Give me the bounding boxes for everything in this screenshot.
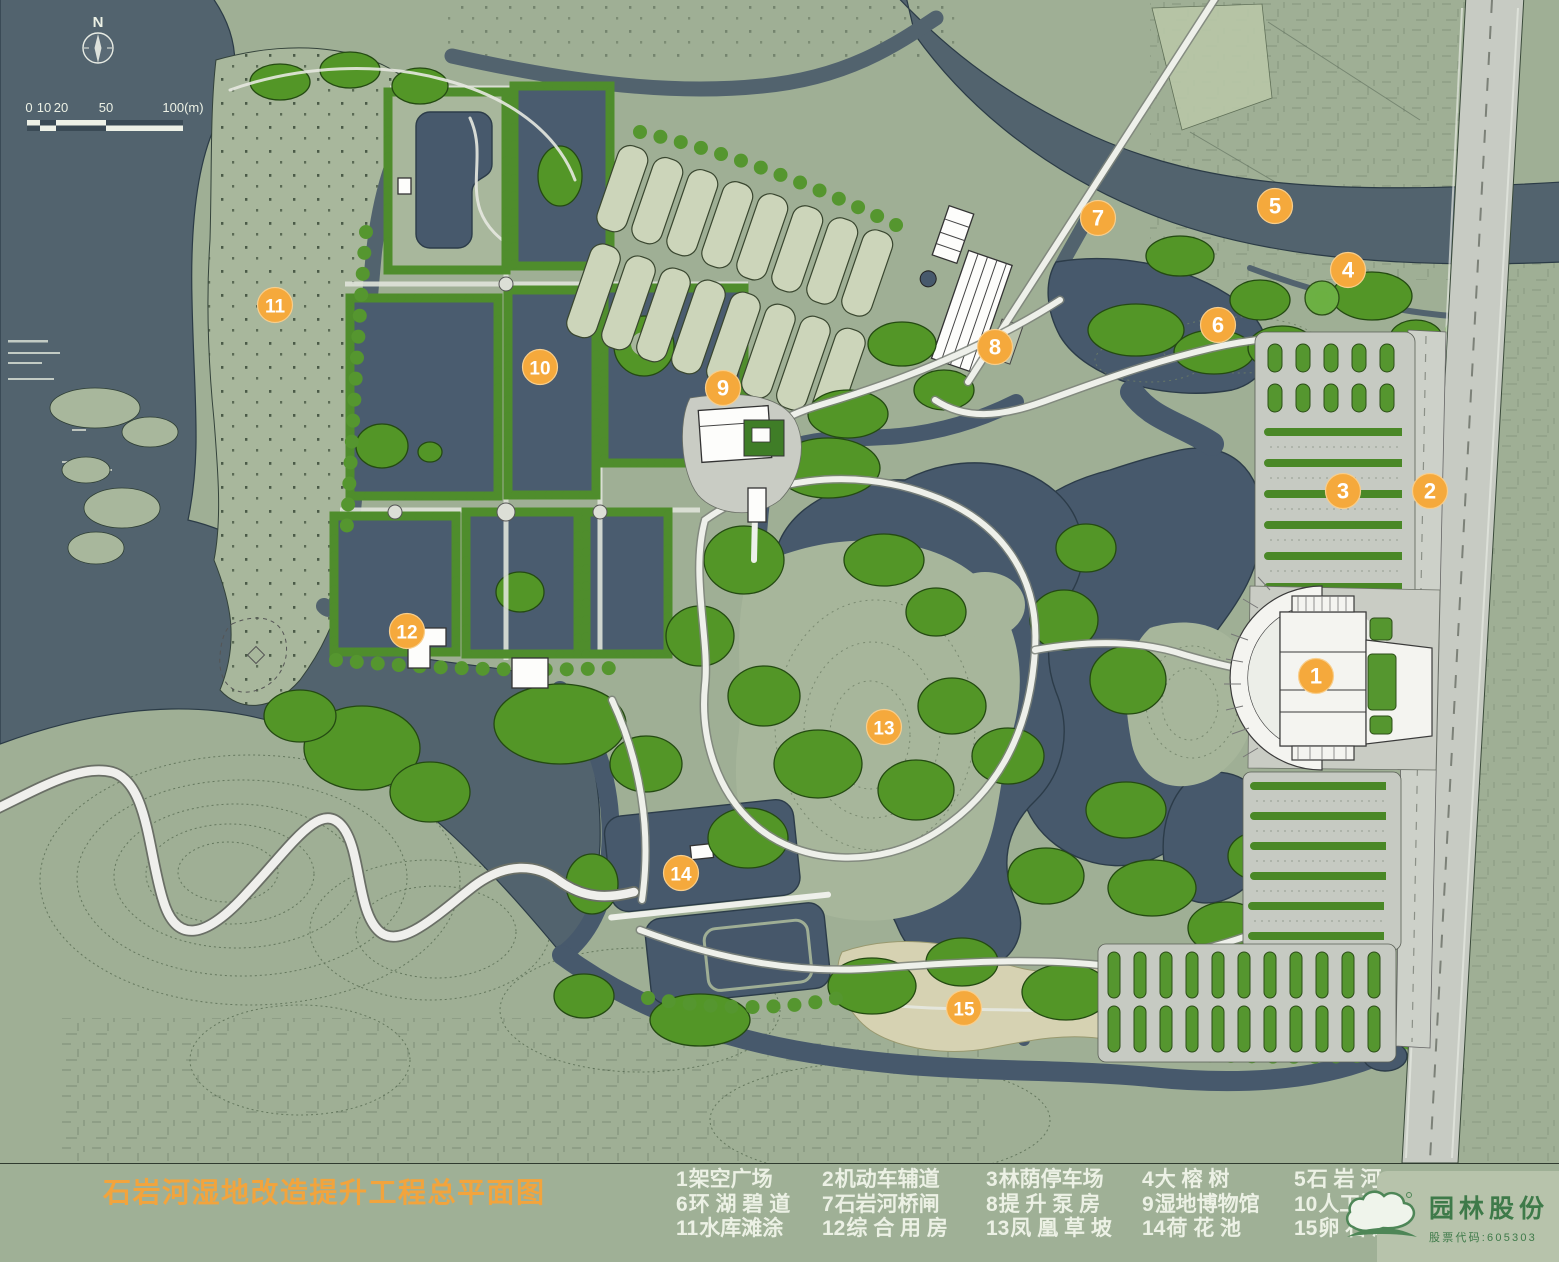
legend-item-label: 林荫停车场 bbox=[999, 1168, 1104, 1191]
map-marker-10: 10 bbox=[523, 350, 558, 385]
legend-item-number: 2 bbox=[822, 1168, 834, 1191]
logo-company-name: 园林股份 bbox=[1429, 1189, 1549, 1225]
svg-text:5: 5 bbox=[1269, 194, 1281, 219]
legend-item-9: 9湿地博物馆 bbox=[1142, 1193, 1294, 1217]
legend-item-label: 荷 花 池 bbox=[1166, 1217, 1241, 1240]
svg-text:6: 6 bbox=[1212, 313, 1224, 338]
svg-text:11: 11 bbox=[265, 297, 286, 318]
svg-text:15: 15 bbox=[953, 1000, 975, 1021]
svg-text:4: 4 bbox=[1342, 258, 1355, 283]
legend-item-number: 6 bbox=[676, 1193, 688, 1216]
svg-text:8: 8 bbox=[989, 335, 1001, 360]
map-marker-11: 11 bbox=[258, 288, 293, 323]
legend-item-7: 7石岩河桥闸 bbox=[822, 1193, 986, 1217]
map-marker-14: 14 bbox=[664, 856, 699, 891]
legend-item-14: 14荷 花 池 bbox=[1142, 1217, 1294, 1241]
legend-item-number: 11 bbox=[676, 1217, 698, 1240]
legend-item-number: 3 bbox=[986, 1168, 998, 1191]
cloud-leaf-logo-icon bbox=[1339, 1185, 1425, 1249]
svg-text:13: 13 bbox=[873, 719, 894, 740]
legend-item-label: 提 升 泵 房 bbox=[999, 1193, 1101, 1216]
svg-text:3: 3 bbox=[1337, 479, 1349, 504]
map-marker-3: 3 bbox=[1326, 474, 1361, 509]
svg-text:14: 14 bbox=[670, 865, 692, 886]
map-marker-12: 12 bbox=[390, 614, 425, 649]
legend-item-3: 3林荫停车场 bbox=[986, 1168, 1142, 1192]
legend-item-13: 13凤 凰 草 坡 bbox=[986, 1217, 1142, 1241]
master-plan-sheet: N 0 10 20 50 100(m) 12345678910111213141… bbox=[0, 0, 1559, 1262]
svg-text:50: 50 bbox=[99, 100, 113, 115]
legend-item-label: 湿地博物馆 bbox=[1155, 1193, 1260, 1216]
legend-item-number: 8 bbox=[986, 1193, 998, 1216]
legend-item-number: 15 bbox=[1294, 1217, 1317, 1240]
map-marker-2: 2 bbox=[1413, 474, 1448, 509]
svg-text:20: 20 bbox=[54, 100, 68, 115]
legend-item-6: 6环 湖 碧 道 bbox=[676, 1193, 822, 1217]
legend-item-number: 5 bbox=[1294, 1168, 1306, 1191]
legend-item-number: 10 bbox=[1294, 1193, 1317, 1216]
north-label: N bbox=[93, 14, 104, 31]
legend-item-12: 12综 合 用 房 bbox=[822, 1217, 986, 1241]
legend-item-2: 2机动车辅道 bbox=[822, 1168, 986, 1192]
svg-text:9: 9 bbox=[717, 376, 729, 401]
map-marker-15: 15 bbox=[947, 991, 982, 1026]
map-marker-5: 5 bbox=[1258, 189, 1293, 224]
map-marker-1: 1 bbox=[1299, 659, 1334, 694]
plan-title: 石岩河湿地改造提升工程总平面图 bbox=[103, 1171, 546, 1211]
svg-text:10: 10 bbox=[529, 359, 550, 380]
legend-item-8: 8提 升 泵 房 bbox=[986, 1193, 1142, 1217]
legend-item-number: 1 bbox=[676, 1168, 688, 1191]
logo-stock-code: 股票代码:605303 bbox=[1429, 1229, 1549, 1245]
legend-item-number: 13 bbox=[986, 1217, 1009, 1240]
svg-text:12: 12 bbox=[396, 623, 417, 644]
company-logo: 园林股份 股票代码:605303 bbox=[1377, 1171, 1559, 1262]
legend-item-label: 大 榕 树 bbox=[1155, 1168, 1230, 1191]
legend-item-number: 4 bbox=[1142, 1168, 1154, 1191]
legend-item-label: 水库滩涂 bbox=[699, 1217, 783, 1240]
map-marker-8: 8 bbox=[978, 330, 1013, 365]
legend-item-11: 11水库滩涂 bbox=[676, 1217, 822, 1241]
legend-item-4: 4大 榕 树 bbox=[1142, 1168, 1294, 1192]
legend-item-label: 石岩河桥闸 bbox=[835, 1193, 940, 1216]
map-marker-9: 9 bbox=[706, 371, 741, 406]
legend: 1架空广场2机动车辅道3林荫停车场4大 榕 树5石 岩 河6环 湖 碧 道7石岩… bbox=[676, 1168, 1434, 1241]
legend-item-label: 架空广场 bbox=[689, 1168, 773, 1191]
annotation-band: 石岩河湿地改造提升工程总平面图 1架空广场2机动车辅道3林荫停车场4大 榕 树5… bbox=[0, 1163, 1559, 1262]
svg-text:1: 1 bbox=[1310, 664, 1322, 689]
legend-item-1: 1架空广场 bbox=[676, 1168, 822, 1192]
legend-item-label: 凤 凰 草 坡 bbox=[1010, 1217, 1112, 1240]
map-marker-7: 7 bbox=[1081, 201, 1116, 236]
map-marker-4: 4 bbox=[1331, 253, 1366, 288]
museum-bridge bbox=[748, 488, 766, 522]
svg-text:0: 0 bbox=[25, 100, 32, 115]
map-marker-6: 6 bbox=[1201, 308, 1236, 343]
svg-text:10: 10 bbox=[37, 100, 51, 115]
svg-text:7: 7 bbox=[1092, 206, 1104, 231]
legend-item-number: 12 bbox=[822, 1217, 845, 1240]
legend-item-number: 14 bbox=[1142, 1217, 1165, 1240]
legend-item-number: 7 bbox=[822, 1193, 834, 1216]
legend-item-label: 综 合 用 房 bbox=[846, 1217, 948, 1240]
site-plan-map: N 0 10 20 50 100(m) 12345678910111213141… bbox=[0, 0, 1559, 1163]
svg-text:2: 2 bbox=[1424, 479, 1436, 504]
map-marker-13: 13 bbox=[867, 710, 902, 745]
svg-text:100(m): 100(m) bbox=[162, 100, 203, 115]
legend-item-label: 机动车辅道 bbox=[835, 1168, 940, 1191]
legend-item-number: 9 bbox=[1142, 1193, 1154, 1216]
legend-item-label: 环 湖 碧 道 bbox=[689, 1193, 791, 1216]
